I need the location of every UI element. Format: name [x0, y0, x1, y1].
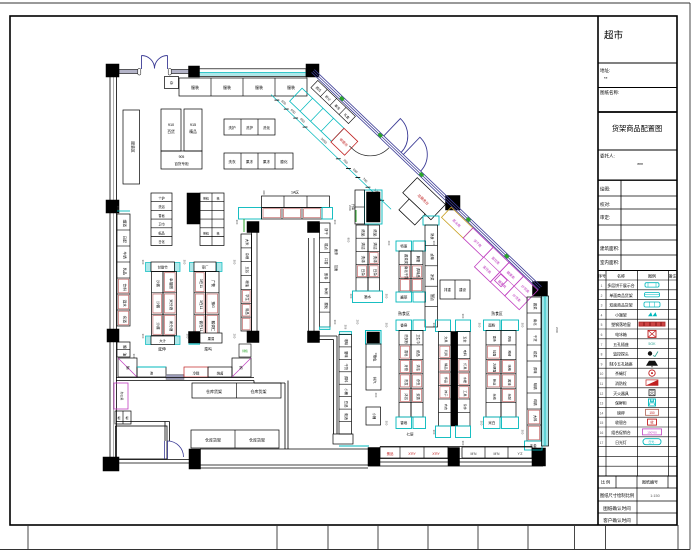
svg-text:建筑面积:: 建筑面积:	[600, 245, 619, 252]
svg-text:洗衣: 洗衣	[228, 159, 236, 164]
svg-text:9: 9	[601, 362, 603, 366]
svg-text:日化: 日化	[158, 239, 165, 244]
svg-text:香皂: 香皂	[400, 420, 408, 425]
svg-text:17: 17	[600, 441, 604, 445]
svg-text:挂面: 挂面	[334, 265, 339, 271]
svg-text:面粉: 面粉	[488, 323, 496, 328]
svg-text:监控探头: 监控探头	[613, 352, 629, 357]
svg-text:粮: 粮	[123, 345, 128, 349]
svg-text:香皂: 香皂	[158, 213, 164, 218]
svg-text:排汽: 排汽	[373, 377, 378, 384]
svg-text:延伸: 延伸	[158, 347, 166, 352]
svg-text:挂面: 挂面	[493, 350, 498, 356]
svg-text:油: 油	[123, 353, 128, 357]
svg-text:鸡精: 鸡精	[533, 399, 538, 406]
svg-text:幸福醋: 幸福醋	[169, 278, 174, 289]
svg-text:米白: 米白	[488, 420, 496, 425]
svg-text:米线: 米线	[493, 394, 498, 400]
svg-text:熟食: 熟食	[430, 233, 435, 240]
svg-text:***: ***	[637, 163, 643, 169]
svg-text:调味: 调味	[508, 336, 513, 342]
svg-text:15: 15	[600, 421, 604, 425]
svg-text:排重: 排重	[444, 287, 451, 292]
svg-text:300: 300	[521, 323, 525, 328]
svg-text:服装: 服装	[191, 84, 199, 90]
svg-text:熟食区: 熟食区	[398, 310, 410, 316]
svg-text:日光..: 日光..	[648, 440, 655, 444]
svg-text:4: 4	[601, 313, 603, 317]
svg-text:200: 200	[233, 334, 237, 339]
svg-text:饰品: 饰品	[444, 377, 449, 383]
svg-text:超市: 超市	[604, 30, 624, 42]
svg-text:日光灯: 日光灯	[615, 440, 627, 445]
svg-text:柜: 柜	[117, 415, 120, 420]
svg-text:口香: 口香	[324, 258, 329, 265]
svg-text:纸品: 纸品	[416, 350, 421, 356]
svg-text:洗护: 洗护	[228, 125, 236, 130]
svg-text:灯具: 灯具	[463, 363, 468, 369]
svg-text:膨化: 膨化	[280, 159, 288, 164]
svg-text:3在11: 3在11	[199, 279, 204, 288]
svg-text:香皂: 香皂	[404, 350, 409, 356]
svg-text:南北干货: 南北干货	[404, 266, 409, 280]
svg-text:300: 300	[374, 353, 378, 358]
svg-text:水暖: 水暖	[463, 377, 468, 383]
svg-text:杂: 杂	[170, 80, 174, 85]
svg-text:杂粮: 杂粮	[245, 253, 250, 260]
svg-text:湘味: 湘味	[344, 339, 349, 346]
svg-text:300: 300	[432, 323, 436, 328]
svg-text:咸菜: 咸菜	[533, 351, 538, 358]
svg-text:蛋卷: 蛋卷	[324, 273, 329, 280]
svg-text:格: 格	[216, 196, 219, 201]
svg-text:2: 2	[601, 294, 603, 298]
svg-text:14: 14	[600, 411, 604, 415]
svg-text:味精: 味精	[533, 383, 538, 390]
svg-text:M'N: M'N	[471, 452, 477, 456]
svg-text:卫生巾: 卫生巾	[416, 334, 421, 344]
svg-text:纸品: 纸品	[373, 229, 378, 237]
svg-text:方便面: 方便面	[493, 363, 498, 372]
svg-text:小端架: 小端架	[615, 312, 627, 317]
svg-text:X'RY: X'RY	[408, 452, 416, 456]
svg-text:塑钢落地窗: 塑钢落地窗	[611, 322, 631, 327]
svg-text:300: 300	[385, 421, 389, 426]
svg-text:日杂: 日杂	[361, 269, 366, 277]
svg-text:调味: 调味	[533, 367, 538, 374]
svg-text:洗护: 洗护	[246, 125, 254, 130]
svg-text:地址:: 地址:	[600, 67, 610, 73]
svg-text:洗浴: 洗浴	[158, 204, 165, 209]
svg-text:学生: 学生	[245, 294, 250, 301]
svg-text:12: 12	[600, 392, 604, 396]
svg-text:袜子: 袜子	[444, 390, 449, 396]
svg-text:300: 300	[385, 294, 389, 299]
svg-text:300: 300	[186, 334, 190, 339]
svg-text:酒水: 酒水	[364, 294, 372, 299]
svg-text:300: 300	[521, 430, 525, 435]
svg-text:灭火器具: 灭火器具	[613, 391, 629, 396]
svg-text:日杂: 日杂	[373, 269, 378, 277]
svg-text:熟食区: 熟食区	[491, 311, 503, 316]
svg-text:X'RY: X'RY	[432, 452, 440, 456]
svg-text:果易: 果易	[208, 336, 215, 341]
svg-text:果冻: 果冻	[246, 159, 254, 164]
svg-text:凉菜: 凉菜	[430, 274, 435, 281]
svg-text:306: 306	[344, 325, 348, 330]
svg-text:备注: 备注	[669, 274, 677, 279]
svg-text:单面商品货架: 单面商品货架	[609, 293, 632, 298]
svg-text:酒水: 酒水	[123, 300, 128, 308]
svg-text:委托人:: 委托人:	[600, 153, 615, 159]
svg-text:甘甜竹: 甘甜竹	[158, 265, 169, 270]
svg-text:室内面积:: 室内面积:	[600, 259, 619, 266]
svg-text:味精: 味精	[508, 365, 513, 371]
svg-text:卤味: 卤味	[430, 254, 435, 261]
svg-text:杀蝇灯: 杀蝇灯	[615, 371, 627, 376]
svg-text:10: 10	[600, 372, 604, 376]
svg-text:鹅调仁: 鹅调仁	[211, 321, 216, 332]
svg-text:酱菜: 酱菜	[400, 294, 408, 299]
svg-text:面条: 面条	[334, 249, 339, 256]
svg-text:服装: 服装	[223, 84, 231, 90]
svg-text:膨化: 膨化	[324, 303, 329, 310]
svg-text:审厂: 审厂	[202, 265, 209, 270]
svg-text:用品: 用品	[245, 308, 249, 315]
svg-text:磅秤: 磅秤	[617, 410, 625, 415]
svg-text:粮油: 粮油	[245, 280, 250, 287]
svg-text:300: 300	[141, 334, 145, 339]
svg-text:300: 300	[333, 220, 337, 225]
svg-text:消防栓: 消防栓	[615, 381, 627, 386]
svg-text:菜吗: 菜吗	[204, 347, 212, 352]
svg-text:果冻: 果冻	[263, 159, 271, 164]
svg-text:文具: 文具	[444, 336, 449, 342]
svg-text:2600: 2600	[348, 205, 352, 212]
svg-text:服装: 服装	[255, 84, 263, 90]
svg-text:饼干: 饼干	[324, 228, 329, 235]
svg-text:烟酒: 烟酒	[344, 413, 349, 420]
svg-text:洗衣粉: 洗衣粉	[404, 334, 409, 344]
svg-text:鸡精: 鸡精	[508, 350, 513, 356]
svg-text:名酒: 名酒	[123, 316, 128, 324]
svg-text:洗涤: 洗涤	[361, 256, 366, 264]
svg-text:1A区: 1A区	[291, 191, 299, 195]
svg-text:杂件: 杂件	[463, 404, 468, 410]
svg-text:300: 300	[385, 323, 389, 328]
svg-text:货架商品配置图: 货架商品配置图	[612, 124, 662, 133]
svg-text:300: 300	[432, 241, 436, 246]
svg-text:干货: 干货	[533, 335, 538, 342]
svg-text:审定:: 审定:	[600, 214, 610, 221]
svg-text:茶粒: 茶粒	[203, 230, 209, 235]
svg-text:纸品: 纸品	[158, 230, 164, 235]
svg-text:小桶: 小桶	[344, 388, 349, 395]
svg-text:腌腊: 腌腊	[416, 256, 421, 263]
svg-text:910: 910	[168, 123, 174, 127]
svg-text:南北: 南北	[533, 319, 538, 326]
svg-text:300: 300	[141, 260, 145, 265]
svg-text:8: 8	[601, 353, 603, 357]
svg-text:百货: 百货	[167, 129, 175, 134]
svg-text:150: 150	[649, 411, 655, 415]
svg-text:300: 300	[461, 314, 465, 319]
svg-text:格: 格	[216, 230, 219, 235]
svg-text:休闲: 休闲	[324, 288, 329, 295]
svg-text:沙酱: 沙酱	[156, 322, 161, 330]
svg-text:香皂: 香皂	[400, 323, 408, 328]
svg-text:校对:: 校对:	[600, 201, 610, 208]
svg-text:制冷五孔插座: 制冷五孔插座	[609, 361, 632, 366]
svg-text:精品: 精品	[444, 363, 449, 369]
svg-text:牙膏: 牙膏	[404, 365, 409, 371]
svg-text:图纸编号: 图纸编号	[642, 479, 658, 485]
svg-text:米分酒: 米分酒	[169, 321, 174, 332]
svg-text:900: 900	[347, 238, 351, 243]
svg-text:多层饼干展示台: 多层饼干展示台	[607, 283, 634, 288]
svg-text:清洁: 清洁	[373, 242, 378, 250]
svg-text:清洁: 清洁	[416, 365, 421, 371]
svg-text:图纸尺寸绘制比例: 图纸尺寸绘制比例	[600, 492, 634, 499]
svg-text:小桶: 小桶	[372, 413, 377, 420]
svg-text:190*60: 190*60	[647, 430, 657, 434]
svg-text:清洁: 清洁	[361, 242, 366, 250]
svg-text:**: **	[604, 76, 608, 81]
svg-text:905: 905	[179, 155, 185, 159]
svg-text:5GK: 5GK	[648, 342, 656, 346]
svg-text:腊味: 腊味	[344, 351, 349, 358]
svg-text:保鲜柜: 保鲜柜	[615, 401, 627, 406]
svg-text:干货: 干货	[344, 364, 349, 371]
svg-text:广警: 广警	[211, 280, 216, 288]
svg-text:6: 6	[601, 333, 603, 337]
svg-text:915: 915	[190, 123, 196, 127]
svg-text:仓库货架: 仓库货架	[206, 388, 222, 394]
svg-text:洗化: 洗化	[263, 125, 271, 130]
svg-text:五孔插座: 五孔插座	[613, 342, 629, 347]
svg-text:序号: 序号	[598, 274, 606, 279]
svg-text:M'N: M'N	[494, 452, 500, 456]
svg-text:3在11: 3在11	[199, 300, 204, 309]
svg-text:冷鲜: 冷鲜	[193, 371, 200, 376]
svg-text:七层: 七层	[406, 432, 414, 437]
svg-text:酱菜: 酱菜	[533, 303, 538, 310]
svg-text:300: 300	[480, 421, 484, 426]
svg-text:图纸确认时间: 图纸确认时间	[603, 505, 631, 512]
svg-text:3: 3	[601, 304, 603, 308]
svg-text:7: 7	[601, 343, 603, 347]
svg-text:个护: 个护	[158, 196, 164, 201]
svg-text:沐浴: 沐浴	[404, 393, 409, 400]
svg-text:电冰箱: 电冰箱	[615, 332, 627, 337]
svg-text:建设: 建设	[459, 287, 466, 292]
svg-text:牛奶: 牛奶	[122, 252, 127, 260]
svg-text:1:150: 1:150	[650, 494, 660, 498]
svg-text:工具: 工具	[463, 390, 468, 396]
svg-text:服装区: 服装区	[131, 141, 136, 153]
svg-text:酱菜类: 酱菜类	[404, 254, 409, 265]
svg-text:300: 300	[461, 441, 465, 446]
svg-text:仓库货架: 仓库货架	[205, 437, 221, 443]
svg-text:仓库货架: 仓库货架	[249, 437, 265, 443]
svg-text:300: 300	[132, 354, 136, 359]
svg-text:2600: 2600	[555, 327, 559, 334]
svg-text:双面商品货架: 双面商品货架	[609, 303, 632, 308]
svg-text:饮料: 饮料	[123, 284, 128, 292]
svg-text:图例: 图例	[648, 273, 656, 279]
svg-text:洗发: 洗发	[404, 379, 409, 386]
svg-text:面条: 面条	[493, 336, 498, 342]
svg-text:米醋: 米醋	[508, 394, 513, 400]
svg-text:糕点: 糕点	[324, 243, 329, 250]
svg-text:13: 13	[600, 402, 604, 406]
svg-text:五金: 五金	[463, 336, 468, 342]
svg-text:200: 200	[349, 294, 353, 299]
svg-text:300: 300	[235, 220, 239, 225]
svg-text:仓库货架: 仓库货架	[251, 388, 267, 394]
svg-text:大料: 大料	[533, 415, 538, 422]
svg-text:乳品: 乳品	[123, 268, 128, 276]
svg-text:16: 16	[600, 431, 604, 435]
svg-text:五谷: 五谷	[245, 267, 250, 274]
svg-text:内衣: 内衣	[444, 404, 449, 410]
svg-text:沙酱: 沙酱	[156, 280, 161, 288]
svg-text:特惠: 特惠	[400, 243, 408, 248]
svg-text:玩具: 玩具	[444, 350, 449, 356]
svg-text:柜: 柜	[125, 415, 128, 420]
svg-text:洗涤: 洗涤	[373, 256, 378, 264]
svg-text:电料: 电料	[463, 350, 468, 356]
svg-text:比 例: 比 例	[601, 479, 610, 485]
svg-text:豫G: 豫G	[211, 302, 216, 309]
svg-text:300: 300	[432, 430, 436, 435]
svg-text:茶粒: 茶粒	[203, 196, 209, 201]
svg-text:蛋品: 蛋品	[387, 451, 394, 456]
svg-text:纸品: 纸品	[361, 229, 366, 237]
svg-text:组合促销台: 组合促销台	[611, 430, 631, 435]
svg-text:300: 300	[262, 190, 266, 195]
svg-text:办公桌: 办公桌	[120, 392, 125, 401]
svg-text:300: 300	[432, 294, 436, 299]
svg-text:调味品: 调味品	[416, 268, 421, 279]
svg-text:杀虫: 杀虫	[416, 379, 421, 386]
svg-text:绘图:: 绘图:	[600, 186, 610, 193]
svg-text:酱在11: 酱在11	[199, 321, 204, 332]
svg-text:300: 300	[478, 323, 482, 328]
svg-text:沙酱: 沙酱	[156, 301, 161, 309]
svg-text:11: 11	[600, 382, 604, 386]
svg-text:粉丝: 粉丝	[493, 379, 498, 385]
svg-text:绿植: 绿植	[242, 349, 248, 353]
svg-text:大汁: 大汁	[159, 338, 166, 343]
svg-text:蚊香: 蚊香	[416, 393, 421, 400]
svg-text:烧卤: 烧卤	[217, 371, 224, 376]
svg-text:调料: 调料	[344, 376, 349, 383]
svg-text:Y'Z: Y'Z	[518, 452, 523, 456]
svg-text:米分酒: 米分酒	[169, 299, 174, 310]
svg-text:300: 300	[233, 260, 237, 265]
svg-text:5: 5	[601, 323, 603, 327]
svg-text:日配: 日配	[123, 236, 128, 244]
svg-text:图纸名称:: 图纸名称:	[600, 89, 619, 96]
svg-text:200: 200	[387, 241, 391, 246]
svg-text:300: 300	[116, 206, 120, 211]
svg-text:300: 300	[183, 260, 187, 265]
svg-text:卫巾: 卫巾	[158, 222, 164, 227]
svg-text:酱油: 酱油	[508, 379, 513, 385]
svg-text:豆品: 豆品	[344, 401, 348, 408]
svg-text:服装: 服装	[287, 84, 295, 90]
svg-text:名称: 名称	[617, 273, 625, 279]
svg-text:百货专柜: 百货专柜	[174, 161, 189, 166]
svg-text:大米: 大米	[245, 239, 250, 246]
svg-text:收银台: 收银台	[615, 420, 627, 425]
svg-text:烟酒: 烟酒	[123, 220, 128, 228]
svg-text:200: 200	[374, 393, 378, 398]
svg-text:300: 300	[333, 320, 337, 325]
svg-text:200: 200	[356, 320, 360, 325]
svg-text:客户确认时间: 客户确认时间	[603, 517, 631, 524]
svg-text:精品: 精品	[189, 129, 197, 134]
svg-text:1: 1	[601, 284, 603, 288]
